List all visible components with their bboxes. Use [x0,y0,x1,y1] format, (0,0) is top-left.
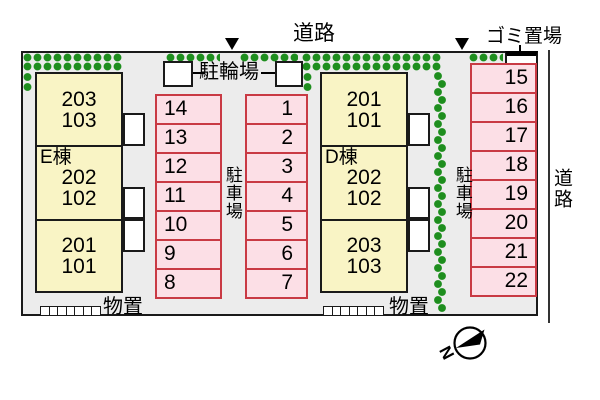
parking-space: 8 [155,268,222,299]
building-d-entry-box [408,113,430,146]
site-plan: 道路 ゴミ置場 道路 203 103 E棟 202 102 201 101 20 [0,0,600,400]
parking-space: 3 [245,152,308,183]
parking-space: 11 [155,181,222,212]
room-number: 103 [37,110,121,131]
parking-space: 22 [470,266,537,297]
room-number: 203 [37,89,121,110]
parking-space: 17 [470,121,537,152]
hedge-icon [303,72,312,92]
garbage-area-label: ゴミ置場 [486,27,562,47]
building-e-entry-box [123,113,145,146]
building-e-entry-box [123,219,145,252]
parking-space: 15 [470,63,537,94]
building-d-unit-middle: D棟 202 102 [322,145,406,219]
room-number: 202 [322,167,406,188]
hedge-icon [434,72,446,312]
parking-space: 2 [245,123,308,154]
road-label-right: 道路 [551,168,571,210]
building-d-name: D棟 [322,148,406,167]
building-e-unit-bottom: 201 101 [37,219,121,291]
shed-unit [91,306,101,316]
parking-space: 4 [245,181,308,212]
hedge-icon [23,53,123,71]
parking-space: 7 [245,268,308,299]
room-number: 102 [37,188,121,209]
hedge-icon [302,53,442,71]
building-d: 201 101 D棟 202 102 203 103 [320,72,408,293]
parking-space: 9 [155,239,222,270]
parking-lot-label: 駐車場 [453,166,471,220]
building-e: 203 103 E棟 202 102 201 101 [35,72,123,293]
building-d-entry-box [408,187,430,219]
compass-icon: N [435,320,497,366]
parking-space: 6 [245,239,308,270]
building-e-entry-box [123,187,145,219]
building-e-name: E棟 [37,148,121,167]
storage-sheds [40,306,100,316]
hedge-icon [469,53,503,62]
leader-line [261,72,275,74]
compass-north-letter: N [435,343,458,363]
parking-space: 19 [470,179,537,210]
storage-sheds [323,306,383,316]
bicycle-parking-label: 駐輪場 [199,62,259,83]
parking-space: 5 [245,210,308,241]
parking-space: 18 [470,150,537,181]
parking-space: 16 [470,92,537,123]
building-e-unit-top: 203 103 [37,74,121,145]
parking-space: 1 [245,94,308,125]
storage-label: 物置 [103,297,143,318]
parking-lot-label: 駐車場 [223,166,241,220]
room-number: 102 [322,188,406,209]
room-number: 201 [37,235,121,256]
building-d-entry-box [408,219,430,252]
building-d-unit-top: 201 101 [322,74,406,145]
parking-space: 10 [155,210,222,241]
parking-space: 13 [155,123,222,154]
road-label-top: 道路 [293,23,335,45]
building-d-unit-bottom: 203 103 [322,219,406,291]
room-number: 101 [37,256,121,277]
parking-column-middle: 1 2 3 4 5 6 7 [245,94,308,299]
room-number: 103 [322,256,406,277]
parking-column-right: 15 16 17 18 19 20 21 22 [470,63,537,297]
room-number: 203 [322,235,406,256]
room-number: 101 [322,110,406,131]
parking-column-left: 14 13 12 11 10 9 8 [155,94,222,299]
room-number: 201 [322,89,406,110]
bicycle-parking-box [275,61,303,87]
building-e-unit-middle: E棟 202 102 [37,145,121,219]
road-edge-line [548,50,550,323]
parking-space: 20 [470,208,537,239]
room-number: 202 [37,167,121,188]
entrance-marker-icon [225,38,239,50]
parking-space: 21 [470,237,537,268]
shed-unit [374,306,384,316]
hedge-icon [23,72,32,92]
storage-label: 物置 [389,297,429,318]
parking-space: 14 [155,94,222,125]
bicycle-parking-box [163,61,193,87]
entrance-marker-icon [455,38,469,50]
parking-space: 12 [155,152,222,183]
